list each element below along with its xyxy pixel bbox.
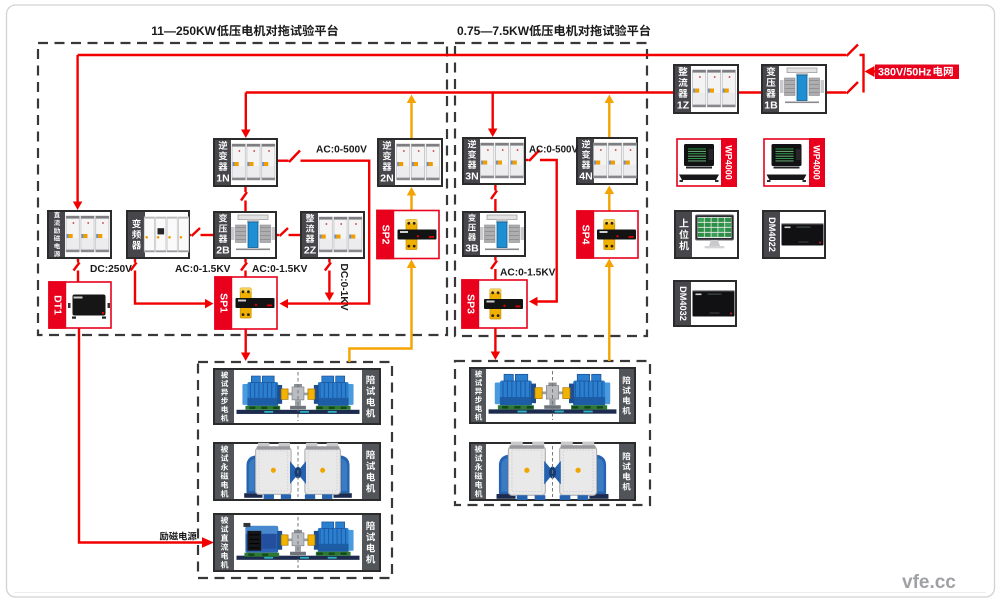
svg-text:SP3: SP3	[465, 294, 477, 314]
svg-text:3B: 3B	[465, 243, 479, 255]
svg-text:AC:0-1.5KV: AC:0-1.5KV	[175, 264, 231, 275]
svg-text:SP4: SP4	[580, 225, 592, 245]
svg-text:1N: 1N	[216, 173, 229, 185]
svg-text:380V/50Hz: 380V/50Hz	[878, 67, 932, 79]
svg-text:WP4000: WP4000	[724, 145, 734, 180]
svg-text:DC:250V: DC:250V	[90, 264, 132, 275]
svg-text:3N: 3N	[465, 171, 478, 183]
svg-text:AC:0-1.5KV: AC:0-1.5KV	[500, 268, 556, 279]
svg-text:4N: 4N	[579, 171, 592, 183]
svg-text:DT1: DT1	[52, 295, 64, 315]
svg-text:vfe.cc: vfe.cc	[902, 572, 956, 593]
svg-text:0.75—7.5KW: 0.75—7.5KW	[457, 24, 530, 38]
svg-text:DM4022: DM4022	[767, 217, 777, 252]
svg-text:AC:0-1.5KV: AC:0-1.5KV	[252, 264, 308, 275]
svg-text:DC:0-1KV: DC:0-1KV	[338, 264, 349, 311]
svg-text:SP2: SP2	[380, 225, 392, 245]
svg-text:11—250KW: 11—250KW	[151, 24, 216, 38]
svg-text:AC:0-500V: AC:0-500V	[529, 145, 578, 156]
svg-text:WP4000: WP4000	[812, 145, 822, 180]
svg-text:2Z: 2Z	[304, 245, 317, 257]
svg-text:SP1: SP1	[218, 293, 230, 313]
svg-text:2B: 2B	[216, 245, 230, 257]
svg-text:1B: 1B	[764, 100, 778, 112]
svg-text:1Z: 1Z	[677, 100, 690, 112]
svg-text:AC:0-500V: AC:0-500V	[316, 145, 367, 156]
svg-text:2N: 2N	[380, 173, 393, 185]
svg-text:DM4032: DM4032	[678, 286, 688, 321]
